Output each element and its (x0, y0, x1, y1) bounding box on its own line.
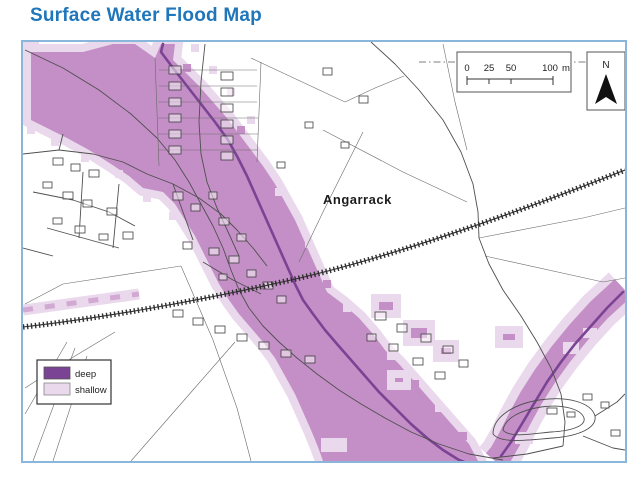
scale-tick-100: 100 (542, 63, 558, 74)
legend-label-deep: deep (75, 369, 96, 380)
legend-label-shallow: shallow (75, 385, 107, 396)
legend-swatch-deep (44, 367, 70, 379)
page: Surface Water Flood Map (0, 0, 640, 477)
scale-tick-25: 25 (484, 63, 495, 74)
scale-tick-50: 50 (506, 63, 517, 74)
map-frame: Angarrack 0 25 50 100 m N deep (21, 40, 627, 463)
flood-layer (23, 42, 623, 461)
north-arrow: N (587, 52, 625, 110)
north-label: N (602, 60, 609, 71)
scale-unit: m (562, 63, 570, 74)
scale-bar: 0 25 50 100 m (457, 52, 571, 92)
scale-tick-0: 0 (464, 63, 469, 74)
page-title: Surface Water Flood Map (30, 5, 262, 27)
place-label: Angarrack (323, 192, 392, 207)
flood-map[interactable]: Angarrack 0 25 50 100 m N deep (23, 42, 625, 461)
legend-swatch-shallow (44, 383, 70, 395)
legend-box: deep shallow (37, 360, 111, 404)
